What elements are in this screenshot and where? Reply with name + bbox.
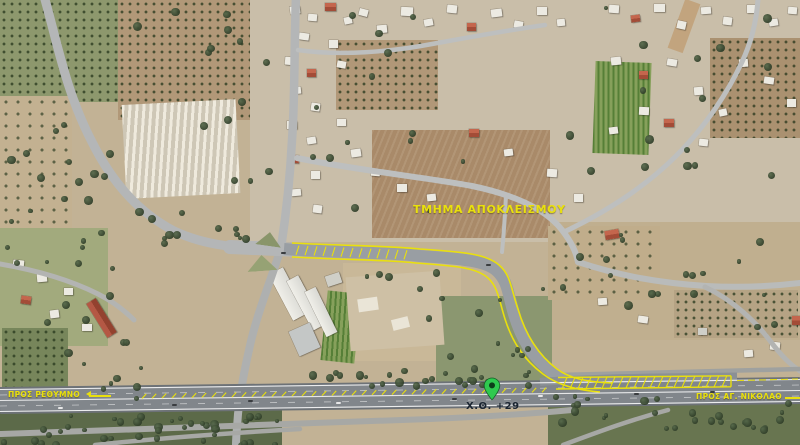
tree [395, 378, 404, 387]
tree [654, 396, 660, 402]
tree [684, 147, 690, 153]
tree [52, 441, 61, 445]
tree [763, 14, 772, 23]
tree [200, 421, 205, 426]
tree [215, 225, 222, 232]
tree [640, 87, 647, 94]
vehicle [538, 395, 543, 398]
tree [58, 429, 63, 434]
tree [45, 260, 50, 265]
tree [133, 418, 142, 427]
vehicle [58, 407, 63, 410]
tree [200, 122, 208, 130]
tree [248, 178, 254, 184]
tree [14, 260, 20, 266]
tree [737, 259, 742, 264]
tree [337, 372, 344, 379]
tree [469, 377, 478, 386]
tree [223, 11, 230, 18]
tree [730, 423, 737, 430]
tree [641, 163, 649, 171]
tree [716, 44, 725, 53]
tree [265, 168, 273, 176]
tree [242, 235, 250, 243]
closure-section-label: ΤΜΗΜΑ ΑΠΟΚΛΕΙΣΜΟΥ [413, 203, 566, 216]
tree [108, 436, 114, 442]
tree [768, 172, 775, 179]
tree [101, 173, 109, 181]
tree [648, 290, 655, 297]
tree [170, 419, 174, 423]
tree [133, 383, 141, 391]
tree [471, 365, 479, 373]
vehicle [248, 400, 253, 403]
tree [587, 167, 595, 175]
tree [511, 353, 515, 357]
tree [178, 416, 183, 421]
tree [496, 341, 501, 346]
tree [81, 238, 86, 243]
tree [604, 6, 609, 11]
tree [53, 128, 59, 134]
tree [9, 219, 14, 224]
tree [69, 414, 73, 418]
tree [356, 371, 364, 379]
traffic-island [255, 230, 283, 247]
tree [410, 14, 416, 20]
tree [652, 410, 658, 416]
tree [134, 396, 139, 401]
vehicle [486, 264, 491, 267]
tree [525, 346, 531, 352]
tree [188, 420, 195, 427]
tree [771, 321, 778, 328]
tree [117, 418, 125, 426]
tree [620, 237, 626, 243]
tree [692, 162, 698, 168]
tree [640, 397, 649, 406]
tree [64, 349, 73, 358]
tree [61, 196, 68, 203]
tree [608, 273, 613, 278]
tree [326, 374, 334, 382]
tree [80, 245, 85, 250]
tree [624, 301, 633, 310]
tree [754, 324, 760, 330]
tree [574, 401, 580, 407]
tree [439, 296, 445, 302]
tree [135, 208, 144, 217]
tree [233, 226, 239, 232]
tree [66, 159, 72, 165]
tree [743, 418, 752, 427]
tree [699, 95, 706, 102]
tree [498, 298, 502, 302]
tree [475, 309, 483, 317]
tree [585, 397, 589, 401]
tree [179, 210, 185, 216]
tree [689, 272, 696, 279]
tree [541, 287, 545, 291]
right-arrow-icon [785, 392, 800, 401]
tree [385, 273, 393, 281]
tree [82, 362, 86, 366]
tree [603, 256, 610, 263]
tree [553, 394, 559, 400]
tree [776, 416, 785, 425]
tree [182, 425, 187, 430]
tree [82, 428, 86, 432]
tree [154, 435, 160, 441]
tree [351, 204, 359, 212]
tree [110, 266, 115, 271]
tree [576, 253, 584, 261]
tree [246, 413, 253, 420]
tree [566, 131, 575, 140]
tree [523, 373, 528, 378]
tree [515, 347, 520, 352]
tree [326, 154, 335, 163]
tree [37, 174, 45, 182]
tree [90, 170, 99, 179]
tree [375, 30, 383, 38]
tree [148, 215, 156, 223]
tree [112, 417, 116, 421]
tree [422, 378, 429, 385]
tree [263, 59, 270, 66]
tree [7, 156, 15, 164]
tree [1, 439, 7, 445]
tree [558, 418, 567, 427]
tree [780, 410, 785, 415]
tree [364, 375, 368, 379]
location-pin-icon[interactable] [483, 377, 501, 401]
vehicle [452, 398, 457, 401]
tree [212, 433, 216, 437]
tree [417, 286, 423, 292]
tree [61, 122, 67, 128]
tree [694, 55, 701, 62]
tree [762, 293, 766, 297]
tree [683, 162, 691, 170]
tree [314, 105, 319, 110]
tree [426, 315, 433, 322]
tree [349, 12, 356, 19]
tree [429, 376, 435, 382]
tree [447, 353, 454, 360]
tree [376, 271, 383, 278]
tree [672, 425, 678, 431]
tree [275, 419, 279, 423]
tree [645, 135, 654, 144]
tree [760, 426, 768, 434]
tree [573, 394, 578, 399]
tree [75, 260, 82, 267]
tree [409, 130, 416, 137]
tree [764, 63, 772, 71]
tree [224, 116, 232, 124]
vegetation-layer [0, 0, 800, 445]
tree [462, 382, 468, 388]
tree [155, 427, 162, 434]
direction-label-rethymno: ΠΡΟΣ ΡΕΘΥΜΝΟ [8, 390, 111, 399]
tree [44, 319, 52, 327]
tree [369, 383, 375, 389]
tree [135, 433, 143, 441]
tree [173, 231, 181, 239]
aerial-map: ΤΜΗΜΑ ΑΠΟΚΛΕΙΣΜΟΥ ΠΡΟΣ ΡΕΘΥΜΝΟ ΠΡΟΣ ΑΓ. … [0, 0, 800, 445]
tree [161, 240, 168, 247]
tree [519, 353, 524, 358]
tree [309, 371, 318, 380]
tree [62, 301, 70, 309]
tree [756, 238, 764, 246]
tree [700, 271, 706, 277]
chainage-label: Χ.Θ. +29 [466, 401, 520, 412]
tree [38, 440, 45, 445]
tree [98, 230, 105, 237]
tree [461, 159, 466, 164]
tree [345, 140, 349, 144]
tree [604, 413, 609, 418]
tree [106, 292, 114, 300]
tree [690, 290, 699, 299]
tree [408, 138, 413, 143]
tree [401, 368, 408, 375]
tree [692, 417, 698, 423]
tree [139, 366, 143, 370]
tree [84, 196, 92, 204]
traffic-island [246, 254, 277, 272]
tree [133, 22, 142, 31]
tree [224, 26, 232, 34]
tree [387, 372, 392, 377]
tree [443, 371, 448, 376]
tree [384, 49, 392, 57]
tree [241, 440, 248, 445]
tree [571, 407, 580, 416]
tree [785, 400, 792, 407]
tree [75, 178, 84, 187]
tree [365, 274, 370, 279]
vehicle [336, 402, 341, 405]
tree [380, 381, 386, 387]
tree [560, 284, 566, 290]
tree [655, 291, 661, 297]
tree [100, 435, 108, 443]
direction-label-agios-nikolaos-text: ΠΡΟΣ ΑΓ. ΝΙΚΟΛΑΟ [696, 392, 782, 401]
tree [82, 316, 90, 324]
tree [211, 425, 220, 434]
tree [109, 381, 114, 386]
tree [231, 177, 238, 184]
direction-label-rethymno-text: ΠΡΟΣ ΡΕΘΥΜΝΟ [8, 390, 80, 399]
tree [207, 45, 214, 52]
tree [65, 424, 71, 430]
vehicle [634, 393, 639, 396]
tree [664, 426, 669, 431]
tree [310, 154, 316, 160]
tree [28, 209, 33, 214]
tree [238, 98, 246, 106]
vehicle [281, 252, 286, 255]
tree [201, 438, 206, 443]
tree [413, 382, 420, 389]
tree [639, 41, 648, 50]
tree [369, 73, 376, 80]
tree [751, 425, 756, 430]
tree [5, 245, 10, 250]
tree [689, 409, 696, 416]
tree [238, 236, 243, 241]
tree [171, 8, 180, 17]
tree [237, 38, 244, 45]
tree [113, 375, 121, 383]
tree [40, 426, 47, 433]
tree [708, 417, 715, 424]
tree [123, 339, 131, 347]
tree [106, 150, 114, 158]
tree [23, 150, 30, 157]
left-arrow-icon [83, 390, 111, 399]
tree [46, 432, 52, 438]
direction-label-agios-nikolaos: ΠΡΟΣ ΑΓ. ΝΙΚΟΛΑΟ [696, 392, 800, 401]
vehicle [172, 404, 177, 407]
tree [433, 269, 440, 276]
tree [525, 382, 532, 389]
